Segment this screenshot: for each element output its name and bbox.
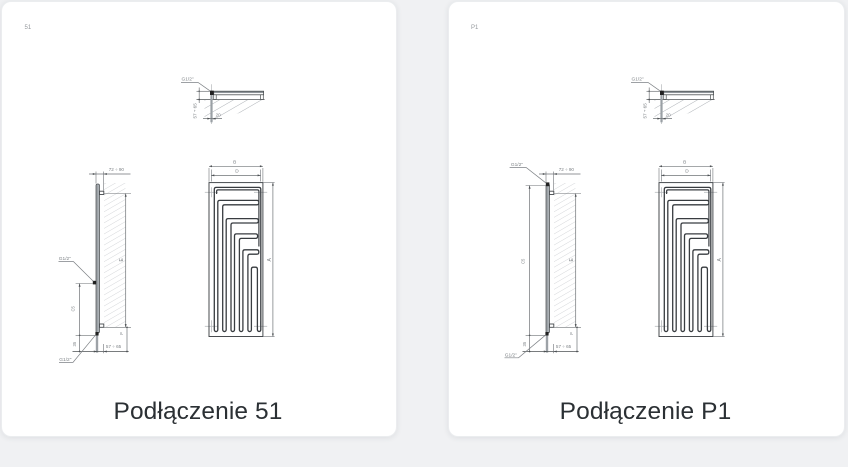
svg-text:C5: C5 bbox=[71, 305, 76, 311]
svg-text:P1: P1 bbox=[471, 25, 479, 31]
svg-text:C5: C5 bbox=[521, 258, 526, 264]
svg-text:51: 51 bbox=[25, 25, 32, 31]
svg-text:G1/2": G1/2" bbox=[511, 162, 523, 168]
